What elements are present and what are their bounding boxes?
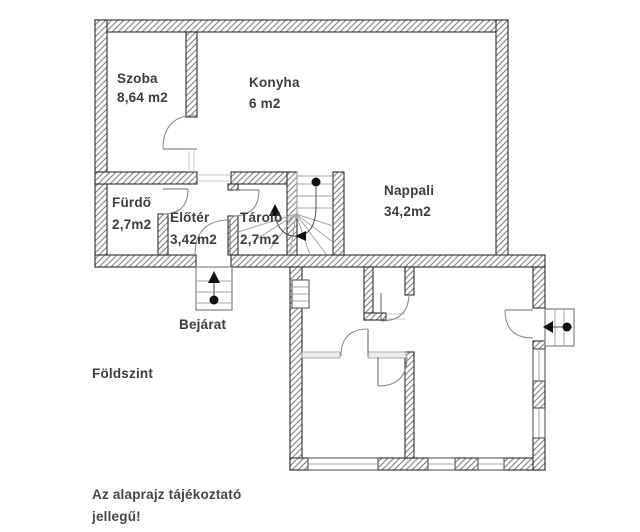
- wall-segment: [231, 255, 545, 267]
- entrance-label: Bejárat: [179, 314, 226, 335]
- room-label-konyha: Konyha 6 m2: [249, 72, 300, 114]
- room-name: Előtér: [170, 207, 217, 229]
- wall-segment: [496, 20, 508, 267]
- wall-segment: [455, 458, 478, 470]
- wall-segment: [186, 32, 197, 117]
- wall-segment: [364, 267, 373, 320]
- disclaimer-line-1: Az alaprajz tájékoztató: [92, 484, 241, 506]
- room-name: Nappali: [384, 180, 434, 201]
- room-name: Fürdő: [112, 192, 151, 214]
- room-name: Konyha: [249, 72, 300, 93]
- wall-segment: [231, 172, 291, 184]
- walk-start-dot: [210, 296, 219, 305]
- room-area: 3,42m2: [170, 229, 217, 251]
- wall-segment: [158, 214, 168, 255]
- room-area: 2,7m2: [240, 229, 282, 251]
- light-partition: [368, 352, 406, 358]
- disclaimer-note: Az alaprajz tájékoztató jellegű!: [92, 484, 241, 528]
- entrance-steps-side: [543, 309, 574, 346]
- door-arc: [505, 310, 533, 338]
- wall-segment: [378, 458, 428, 470]
- wall-segment: [95, 172, 197, 184]
- disclaimer-line-2: jellegű!: [92, 506, 241, 528]
- wall-segment: [533, 438, 545, 470]
- walk-start-dot: [312, 178, 321, 187]
- room-label-eloter: Előtér 3,42m2: [170, 207, 217, 251]
- door-arc: [378, 357, 407, 386]
- wall-segment: [228, 184, 238, 190]
- floor-title: Földszint: [92, 363, 153, 384]
- room-area: 6 m2: [249, 93, 300, 114]
- room-area: 2,7m2: [112, 214, 151, 236]
- light-partition: [302, 352, 340, 358]
- upper-floor-walls: [95, 20, 545, 267]
- wall-segment: [95, 255, 196, 267]
- floor-plan-drawing: [0, 0, 640, 532]
- wall-segment: [533, 381, 545, 408]
- room-name: Tároló: [240, 207, 282, 229]
- wall-segment: [533, 267, 545, 308]
- wall-segment: [95, 20, 508, 32]
- wall-segment: [364, 313, 386, 320]
- room-name: Szoba: [117, 69, 168, 88]
- room-label-furdo: Fürdő 2,7m2: [112, 192, 151, 236]
- wall-segment: [533, 341, 545, 349]
- door-arc: [341, 329, 368, 356]
- wall-segment: [405, 352, 414, 458]
- walk-start-dot: [563, 323, 572, 332]
- wall-segment: [95, 20, 107, 267]
- room-label-tarolo: Tároló 2,7m2: [240, 207, 282, 251]
- wall-segment: [333, 172, 344, 255]
- windows: [292, 280, 545, 470]
- wall-segment: [405, 267, 414, 295]
- door-arc: [163, 115, 197, 149]
- floor-plan-page: Szoba 8,64 m2 Konyha 6 m2 Fürdő 2,7m2 El…: [0, 0, 640, 532]
- room-area: 8,64 m2: [117, 88, 168, 107]
- lower-section-walls: [290, 267, 545, 470]
- doors: [163, 115, 533, 386]
- room-area: 34,2m2: [384, 201, 434, 222]
- wall-segment: [290, 458, 308, 470]
- room-label-nappali: Nappali 34,2m2: [384, 180, 434, 222]
- entrance-steps-front: [196, 267, 232, 310]
- room-label-szoba: Szoba 8,64 m2: [117, 69, 168, 107]
